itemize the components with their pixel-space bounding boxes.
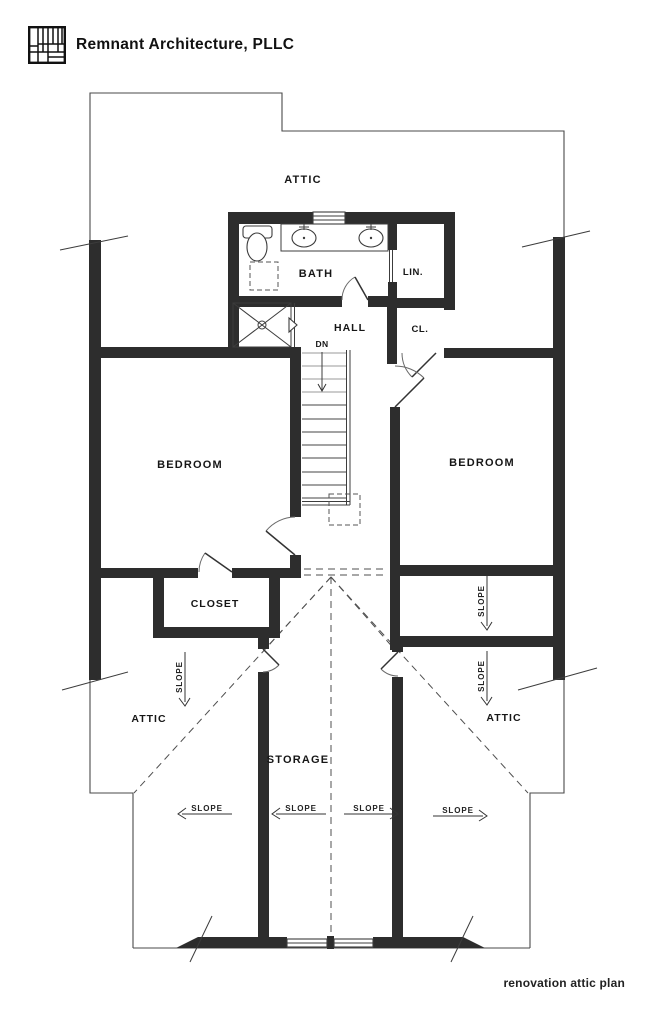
closet-door — [199, 553, 232, 572]
slope-annotation: SLOPE — [477, 651, 492, 705]
roof-dashed-lines — [134, 569, 528, 937]
shower-symbol — [233, 303, 297, 347]
svg-text:SLOPE: SLOPE — [477, 660, 486, 692]
room-label-closet: CLOSET — [191, 598, 240, 610]
bedroom-left-door — [266, 517, 295, 555]
room-label-attic-top: ATTIC — [284, 174, 322, 186]
floor-plan: ATTIC BATH LIN. HALL CL. BEDROOM BEDROOM… — [0, 0, 663, 1024]
toilet-symbol — [243, 226, 272, 261]
room-label-attic-right: ATTIC — [486, 712, 521, 724]
room-label-bedroom-left: BEDROOM — [157, 459, 223, 471]
svg-text:SLOPE: SLOPE — [191, 804, 223, 813]
room-label-attic-left: ATTIC — [131, 713, 166, 725]
down-arrow-icon — [318, 352, 326, 391]
bath-dashed-fixture — [250, 262, 278, 290]
slope-annotation: SLOPE — [344, 804, 398, 819]
slope-annotation: SLOPE — [178, 804, 232, 819]
room-label-bath: BATH — [299, 268, 334, 280]
linen-door — [390, 250, 393, 282]
drawing-title: renovation attic plan — [503, 976, 625, 990]
svg-text:SLOPE: SLOPE — [353, 804, 385, 813]
room-label-linen: LIN. — [403, 267, 423, 278]
chimney-dashed-outline — [329, 494, 360, 525]
stairs-symbol — [302, 350, 350, 505]
storage-door-right — [381, 652, 398, 676]
drawing-sheet: Remnant Architecture, PLLC — [0, 0, 663, 1024]
walls — [89, 212, 565, 949]
room-label-hall: HALL — [334, 322, 366, 334]
slope-annotation: SLOPE — [272, 804, 326, 819]
room-label-storage: STORAGE — [267, 754, 330, 766]
vanity-symbol — [281, 224, 388, 251]
slope-annotation: SLOPE — [477, 576, 492, 630]
storage-door-left — [263, 649, 279, 672]
room-label-bedroom-right: BEDROOM — [449, 457, 515, 469]
bath-door — [342, 277, 368, 300]
storage-window-left — [287, 939, 327, 947]
svg-text:SLOPE: SLOPE — [285, 804, 317, 813]
slope-annotation: SLOPE — [433, 806, 487, 821]
bath-window — [313, 212, 345, 224]
storage-window-right — [334, 939, 373, 947]
stair-dn-label: DN — [315, 339, 328, 349]
room-label-cl: CL. — [411, 324, 428, 335]
svg-text:SLOPE: SLOPE — [477, 585, 486, 617]
svg-text:SLOPE: SLOPE — [442, 806, 474, 815]
slope-annotation: SLOPE — [175, 652, 190, 706]
svg-text:SLOPE: SLOPE — [175, 661, 184, 693]
bedroom-right-door — [395, 366, 424, 407]
